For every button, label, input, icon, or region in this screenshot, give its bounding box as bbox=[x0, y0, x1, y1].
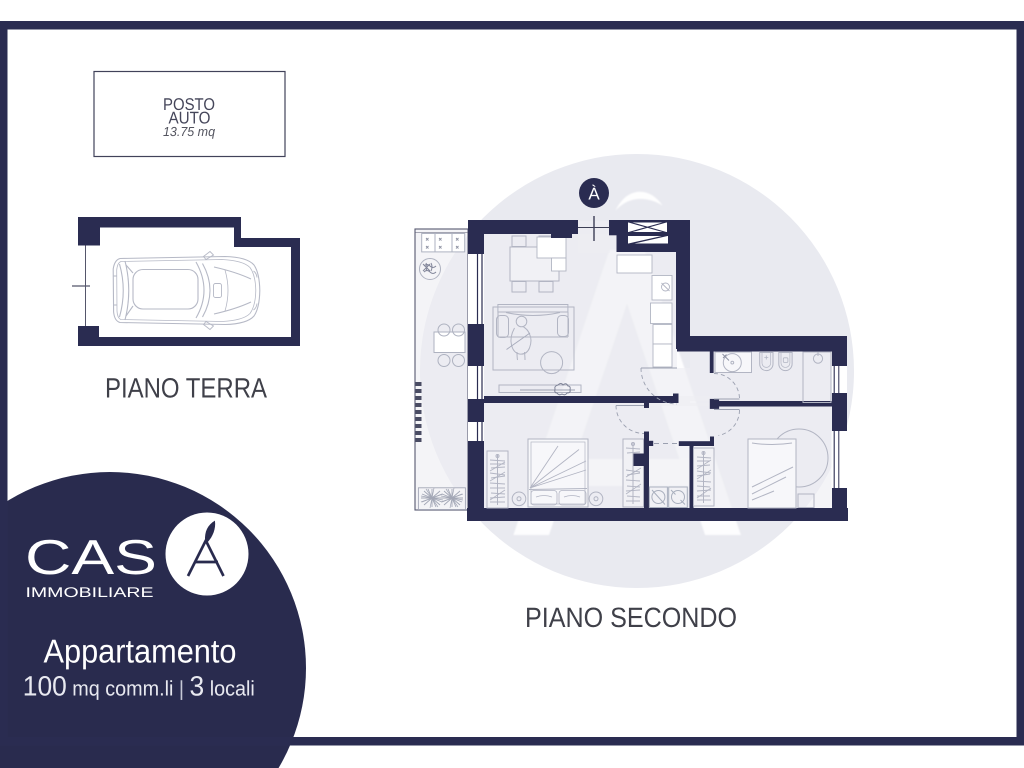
svg-text:Appartamento: Appartamento bbox=[44, 633, 237, 670]
svg-text:13.75 mq: 13.75 mq bbox=[163, 124, 216, 139]
svg-text:CAS: CAS bbox=[25, 531, 157, 585]
svg-text:PIANO SECONDO: PIANO SECONDO bbox=[525, 602, 737, 633]
svg-text:À: À bbox=[588, 185, 600, 204]
svg-text:IMMOBILIARE: IMMOBILIARE bbox=[26, 584, 154, 600]
svg-text:PIANO TERRA: PIANO TERRA bbox=[105, 373, 267, 404]
